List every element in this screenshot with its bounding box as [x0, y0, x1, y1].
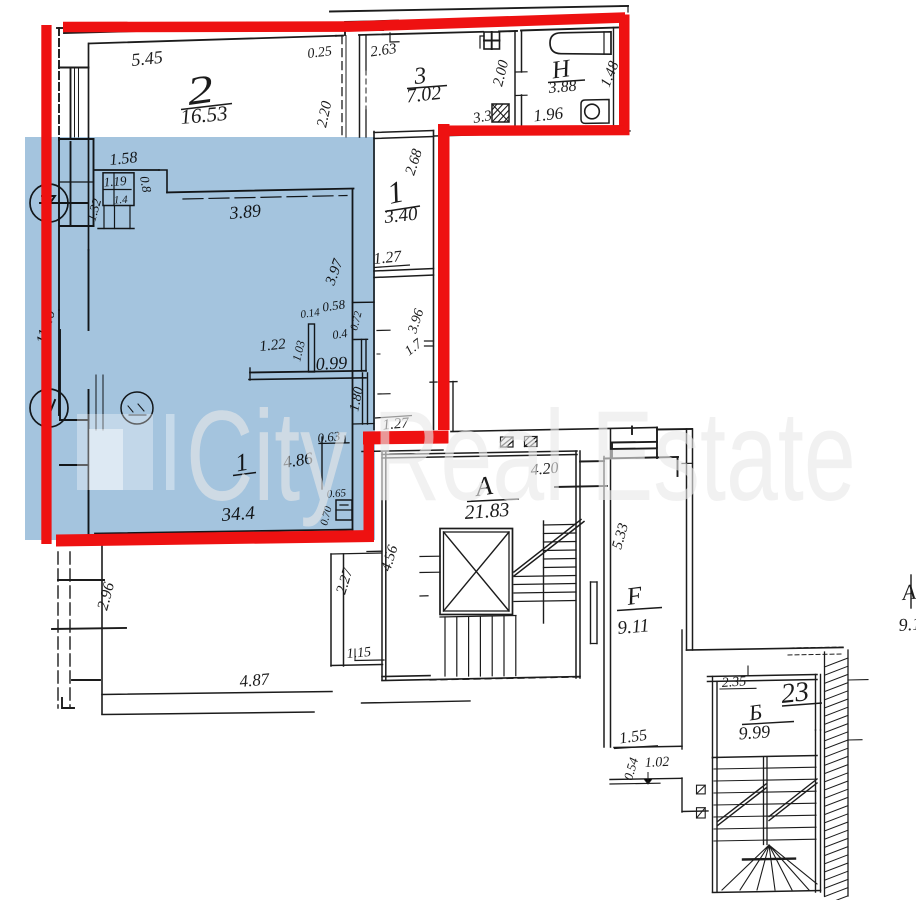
svg-text:0.25: 0.25 — [307, 44, 333, 62]
svg-text:2.35: 2.35 — [721, 674, 746, 691]
svg-text:5.45: 5.45 — [130, 47, 163, 70]
svg-text:16.53: 16.53 — [179, 101, 228, 129]
svg-text:9.11: 9.11 — [617, 615, 651, 639]
svg-text:7.02: 7.02 — [405, 82, 442, 108]
svg-text:1.02: 1.02 — [644, 755, 669, 771]
svg-text:City Real Estate: City Real Estate — [186, 385, 856, 528]
svg-text:1.15: 1.15 — [346, 645, 372, 662]
svg-text:1.27: 1.27 — [373, 248, 404, 268]
svg-text:3.40: 3.40 — [382, 204, 419, 229]
svg-text:9.99: 9.99 — [738, 721, 771, 743]
svg-text:3.3: 3.3 — [471, 108, 493, 127]
svg-text:9.1: 9.1 — [898, 613, 916, 635]
svg-text:3.88: 3.88 — [547, 78, 577, 97]
svg-text:1.96: 1.96 — [532, 103, 564, 125]
svg-text:4.87: 4.87 — [239, 669, 272, 691]
